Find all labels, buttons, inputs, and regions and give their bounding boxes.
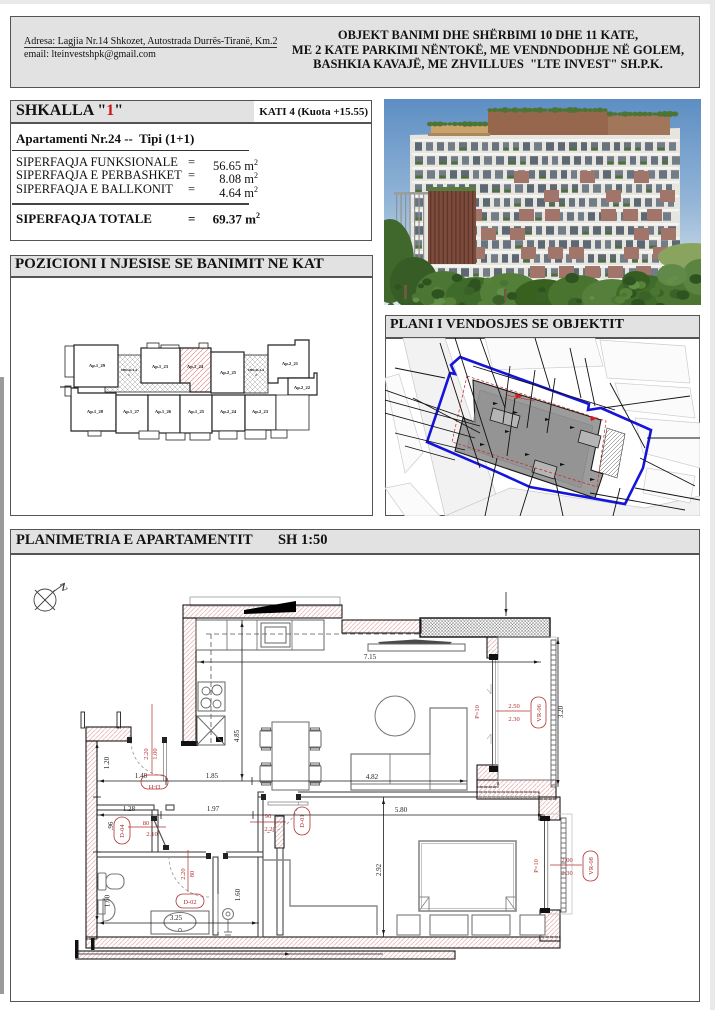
svg-text:1.60: 1.60	[234, 888, 242, 901]
svg-text:Ap.1_29: Ap.1_29	[89, 363, 106, 368]
svg-text:Ap.1_24: Ap.1_24	[187, 364, 204, 369]
svg-text:2.92: 2.92	[375, 863, 383, 876]
svg-text:2.30: 2.30	[561, 870, 572, 877]
svg-text:D-04: D-04	[119, 824, 126, 838]
svg-text:2.20: 2.20	[180, 868, 187, 879]
svg-text:Ap.2_24: Ap.2_24	[220, 409, 237, 414]
svg-text:1.00: 1.00	[152, 748, 159, 759]
svg-text:2.20: 2.20	[264, 826, 275, 833]
svg-text:1.28: 1.28	[123, 805, 136, 813]
svg-text:1.97: 1.97	[207, 805, 220, 813]
svg-text:2.50: 2.50	[508, 703, 519, 710]
svg-text:3.25: 3.25	[170, 914, 183, 922]
svg-text:2.00: 2.00	[561, 857, 572, 864]
svg-text:Ap.2_25: Ap.2_25	[220, 370, 237, 375]
svg-text:z: z	[58, 577, 70, 594]
svg-text:5.80: 5.80	[395, 806, 408, 814]
svg-text:4.85: 4.85	[233, 729, 241, 742]
svg-text:80: 80	[143, 820, 150, 827]
svg-text:1.85: 1.85	[206, 772, 219, 780]
svg-text:2.20: 2.20	[143, 748, 150, 759]
svg-text:Ap.1_27: Ap.1_27	[123, 409, 140, 414]
svg-text:7.15: 7.15	[364, 653, 377, 661]
svg-text:SHKALLA: SHKALLA	[248, 368, 265, 372]
svg-text:3.20: 3.20	[557, 705, 565, 718]
svg-text:2.10: 2.10	[146, 831, 157, 838]
svg-text:Ap.1_25: Ap.1_25	[188, 409, 205, 414]
svg-text:4.82: 4.82	[366, 773, 379, 781]
svg-text:SHKALLA: SHKALLA	[121, 368, 138, 372]
svg-text:VR-06: VR-06	[536, 703, 543, 721]
svg-text:2.30: 2.30	[508, 716, 519, 723]
svg-text:1.40: 1.40	[135, 772, 148, 780]
svg-text:90: 90	[265, 813, 272, 820]
svg-text:D-H: D-H	[148, 783, 160, 790]
svg-text:D-01: D-01	[299, 814, 306, 827]
svg-text:Ap.2_22: Ap.2_22	[294, 385, 311, 390]
svg-text:Ap.1_26: Ap.1_26	[155, 409, 172, 414]
svg-text:VR-08: VR-08	[588, 857, 595, 875]
svg-text:P=10: P=10	[474, 705, 481, 719]
svg-text:Ap.2_23: Ap.2_23	[252, 409, 269, 414]
svg-text:2: 2	[255, 373, 257, 377]
svg-text:80: 80	[189, 871, 196, 878]
svg-text:Ap.1_28: Ap.1_28	[87, 409, 104, 414]
svg-text:1: 1	[128, 373, 130, 377]
svg-text:Ap.2_21: Ap.2_21	[282, 361, 299, 366]
svg-text:D-02: D-02	[183, 899, 196, 906]
svg-text:Ap.1_23: Ap.1_23	[152, 364, 169, 369]
svg-text:1.60: 1.60	[104, 894, 112, 907]
svg-text:1.20: 1.20	[103, 756, 111, 769]
svg-text:P=10: P=10	[533, 859, 540, 873]
